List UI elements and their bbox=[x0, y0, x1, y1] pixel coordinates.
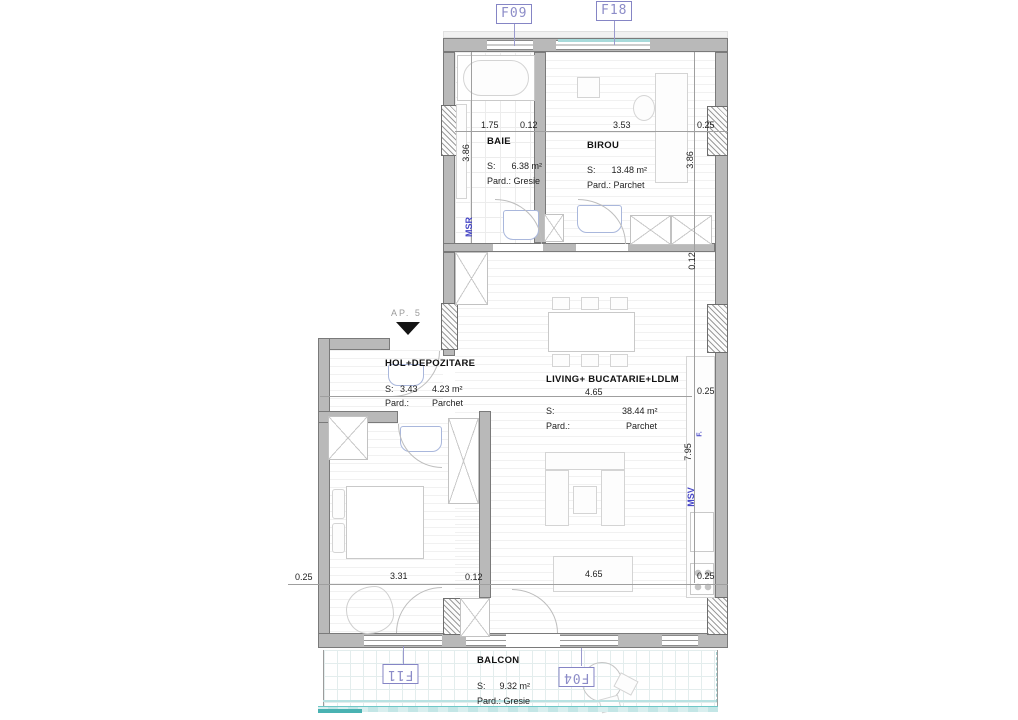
door-opening-baie bbox=[493, 244, 543, 251]
pillow-icon bbox=[332, 523, 345, 553]
room-name: BIROU bbox=[587, 140, 647, 151]
floor-prefix: Pard.: bbox=[546, 421, 570, 431]
area-value: 6.38 m² bbox=[512, 161, 543, 171]
wall-annotation-msr: MSR bbox=[464, 217, 474, 237]
floor-value: Parchet bbox=[626, 421, 657, 431]
room-name: BAIE bbox=[487, 136, 542, 147]
window-tag-f11: F11 bbox=[382, 664, 418, 684]
dim-value: 0.25 bbox=[697, 120, 715, 130]
door-opening-birou bbox=[576, 244, 628, 251]
wardrobe-bedroom-right bbox=[448, 418, 479, 504]
dim-value: 3.31 bbox=[390, 571, 408, 581]
room-label-birou: BIROU S:13.48 m² Pard.: Parchet bbox=[587, 140, 647, 190]
chair-icon bbox=[610, 354, 628, 367]
dim-value: 0.25 bbox=[295, 572, 313, 582]
tag-leader bbox=[614, 21, 615, 45]
chair-icon bbox=[581, 297, 599, 310]
entrance-arrow-icon bbox=[396, 322, 420, 335]
floor-prefix: Pard.: bbox=[385, 398, 409, 408]
door-opening-balcony bbox=[506, 634, 560, 647]
bathtub-basin-icon bbox=[463, 60, 529, 96]
dim-value: 3.53 bbox=[613, 120, 631, 130]
chair-icon bbox=[610, 297, 628, 310]
dim-value: 3.86 bbox=[461, 144, 471, 162]
dim-value: 0.12 bbox=[465, 572, 483, 582]
sofa-left-icon bbox=[545, 470, 569, 526]
window-f11 bbox=[364, 635, 442, 646]
floor-plan: 1.75 0.12 3.53 0.25 3.86 3.86 0.12 0.25 … bbox=[0, 0, 1018, 720]
area-prefix: S: bbox=[385, 384, 394, 394]
area-value: 9.32 m² bbox=[500, 681, 531, 691]
area-prefix: S: bbox=[546, 406, 555, 416]
chair-icon bbox=[581, 354, 599, 367]
window-sill-glass bbox=[558, 39, 650, 42]
wardrobe-bedroom-left bbox=[328, 416, 368, 460]
dining-table-icon bbox=[548, 312, 635, 352]
dim-value: 0.25 bbox=[697, 386, 715, 396]
wardrobe-birou-1 bbox=[630, 215, 671, 245]
entrance-label: AP. 5 bbox=[391, 308, 422, 318]
room-label-hol: HOL+DEPOZITARE S:4.23 m² Pard.:Parchet bbox=[385, 358, 475, 408]
shaft-corridor bbox=[544, 214, 564, 242]
dim-value: 7.95 bbox=[683, 443, 693, 461]
shaft-bottom bbox=[460, 598, 490, 637]
dim-value: 3.86 bbox=[685, 151, 695, 169]
wardrobe-birou-2 bbox=[671, 215, 712, 245]
window-tag-f09: F09 bbox=[496, 4, 532, 24]
room-label-baie: BAIE S:6.38 m² Pard.: Gresie bbox=[487, 136, 542, 186]
hatch-right-mid bbox=[707, 304, 728, 353]
window-f09 bbox=[487, 40, 533, 50]
area-prefix: S: bbox=[587, 165, 596, 175]
area-value: 13.48 m² bbox=[612, 165, 648, 175]
balcony-glass-band bbox=[318, 706, 718, 712]
wall-left-lower bbox=[318, 338, 330, 648]
plant-icon bbox=[346, 586, 394, 634]
bed-icon bbox=[346, 486, 424, 559]
sofa-right-icon bbox=[601, 470, 625, 526]
dim-value: 0.12 bbox=[520, 120, 538, 130]
office-chair-icon bbox=[633, 95, 655, 121]
floor-value: Parchet bbox=[432, 398, 463, 408]
tag-leader bbox=[403, 646, 404, 664]
chair-icon bbox=[552, 297, 570, 310]
pillow-icon bbox=[332, 489, 345, 519]
room-name: LIVING+ BUCATARIE+LDLM bbox=[546, 374, 679, 385]
room-label-balcon: BALCON S:9.32 m² Pard.: Gresie bbox=[477, 655, 530, 706]
wall-bedroom-living bbox=[479, 411, 491, 598]
room-name: BALCON bbox=[477, 655, 530, 666]
wall-annotation-msv: MSV bbox=[686, 487, 696, 507]
sofa-back-icon bbox=[545, 452, 625, 470]
area-value: 38.44 m² bbox=[622, 406, 658, 416]
room-label-living: LIVING+ BUCATARIE+LDLM S:38.44 m² Pard.:… bbox=[546, 374, 679, 431]
hatch-right-lower bbox=[707, 597, 728, 635]
tag-leader bbox=[514, 24, 515, 46]
window-tag-f18: F18 bbox=[596, 1, 632, 21]
hatch-entrance-pier bbox=[441, 303, 458, 350]
balcony-edge-dashed bbox=[716, 652, 718, 702]
wardrobe-living-topleft bbox=[455, 252, 488, 305]
dim-value: 4.65 bbox=[585, 569, 603, 579]
area-value: 4.23 m² bbox=[432, 384, 463, 394]
window-f04 bbox=[560, 635, 618, 646]
top-slab-edge bbox=[443, 31, 728, 38]
balcony-glass-dark-segment bbox=[318, 709, 362, 713]
area-prefix: S: bbox=[487, 161, 496, 171]
desk-icon bbox=[655, 73, 688, 183]
chair-icon bbox=[552, 354, 570, 367]
room-name: HOL+DEPOZITARE bbox=[385, 358, 475, 369]
floor-finish: Pard.: Gresie bbox=[487, 176, 542, 186]
dim-line-bottom bbox=[288, 584, 728, 585]
floor-finish: Pard.: Parchet bbox=[587, 180, 647, 190]
dim-value: 0.12 bbox=[687, 252, 697, 270]
floor-finish: Pard.: Gresie bbox=[477, 696, 530, 706]
window-bottom-2 bbox=[662, 635, 698, 646]
dim-value: 0.25 bbox=[697, 571, 715, 581]
coffee-table-icon bbox=[573, 486, 597, 514]
dim-line-left-vertical bbox=[471, 52, 472, 243]
wall-annotation-f: F. bbox=[697, 431, 704, 436]
tag-leader bbox=[581, 648, 582, 666]
window-tag-f04: F04 bbox=[558, 667, 594, 687]
dim-value: 1.75 bbox=[481, 120, 499, 130]
cabinet-icon bbox=[577, 77, 600, 98]
area-prefix: S: bbox=[477, 681, 486, 691]
dim-line-top bbox=[455, 131, 728, 132]
